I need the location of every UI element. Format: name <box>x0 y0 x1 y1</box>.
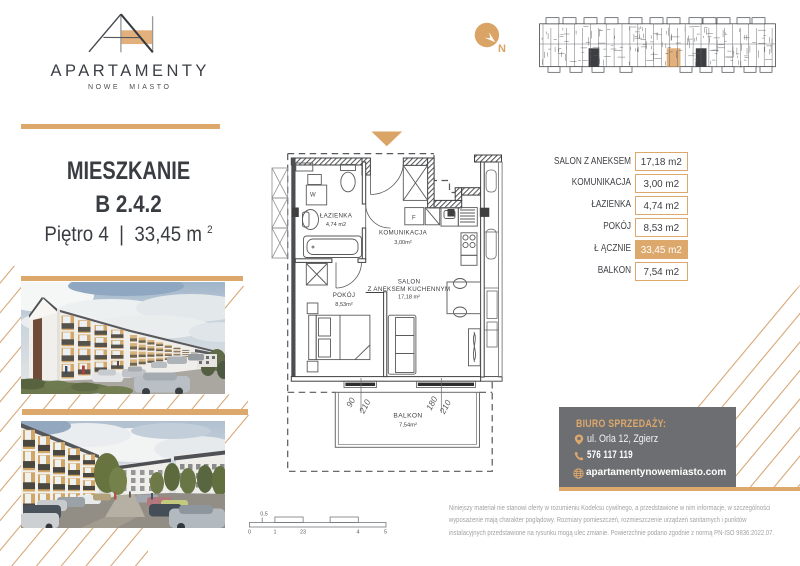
svg-text:17,18 m²: 17,18 m² <box>398 295 420 301</box>
svg-text:210: 210 <box>437 398 453 416</box>
svg-text:90: 90 <box>344 396 357 409</box>
svg-text:5: 5 <box>384 530 387 536</box>
svg-text:23: 23 <box>300 530 306 536</box>
svg-text:KOMUNIKACJA: KOMUNIKACJA <box>379 230 428 237</box>
svg-text:ŁAZIENKA: ŁAZIENKA <box>320 213 353 220</box>
svg-text:1: 1 <box>274 530 277 536</box>
svg-text:4,74 m2: 4,74 m2 <box>326 222 346 228</box>
svg-text:3,00m²: 3,00m² <box>394 240 412 246</box>
svg-text:0,5: 0,5 <box>260 512 268 518</box>
svg-text:8,53m²: 8,53m² <box>335 302 353 308</box>
svg-text:0: 0 <box>248 530 251 536</box>
svg-text:SALON: SALON <box>398 279 420 286</box>
svg-text:210: 210 <box>356 397 372 415</box>
svg-text:4: 4 <box>357 530 360 536</box>
svg-text:POKÓJ: POKÓJ <box>333 292 355 299</box>
svg-text:BALKON: BALKON <box>393 413 422 420</box>
svg-text:W: W <box>310 193 316 199</box>
svg-text:F: F <box>412 216 416 222</box>
svg-text:Z ANEKSEM KUCHENNYM: Z ANEKSEM KUCHENNYM <box>368 286 451 293</box>
svg-text:N: N <box>498 43 506 55</box>
svg-text:7,54m²: 7,54m² <box>399 423 417 429</box>
